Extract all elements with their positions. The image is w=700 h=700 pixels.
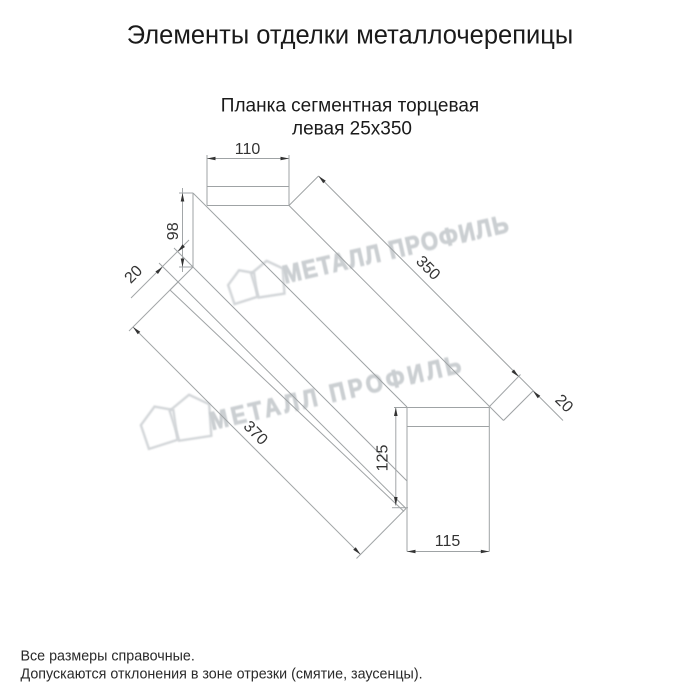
svg-text:левая 25х350: левая 25х350: [292, 119, 412, 140]
svg-text:Допускаются отклонения в зоне: Допускаются отклонения в зоне отрезки (с…: [21, 667, 423, 683]
svg-text:110: 110: [235, 141, 261, 158]
svg-text:115: 115: [435, 533, 461, 550]
svg-text:Все размеры справочные.: Все размеры справочные.: [21, 649, 195, 665]
svg-text:125: 125: [375, 445, 392, 472]
svg-text:Элементы отделки металлочерепи: Элементы отделки металлочерепицы: [127, 22, 573, 50]
svg-text:Планка сегментная торцевая: Планка сегментная торцевая: [221, 96, 479, 117]
svg-text:98: 98: [165, 222, 182, 240]
